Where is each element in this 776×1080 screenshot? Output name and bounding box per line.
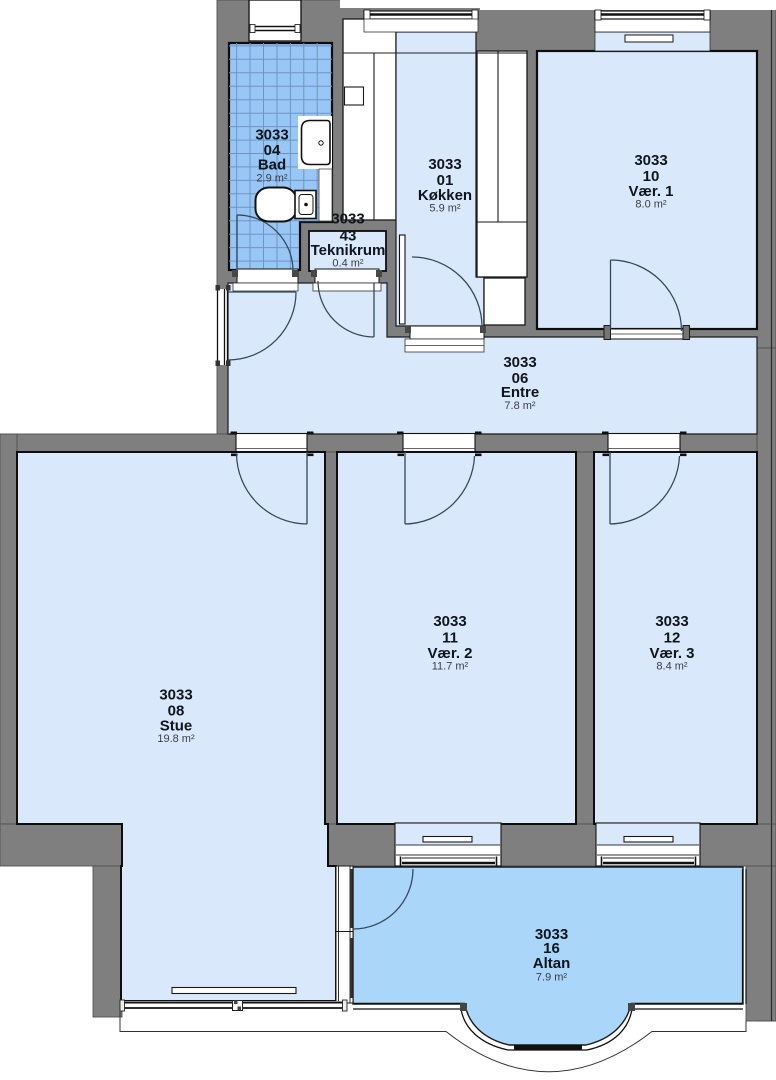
svg-text:Vær. 2: Vær. 2 bbox=[427, 645, 472, 662]
svg-text:11.7 m²: 11.7 m² bbox=[432, 661, 469, 673]
svg-text:3033: 3033 bbox=[159, 687, 192, 704]
svg-text:3033: 3033 bbox=[634, 152, 667, 169]
svg-text:3033: 3033 bbox=[255, 127, 288, 144]
svg-text:8.4 m²: 8.4 m² bbox=[656, 661, 688, 673]
svg-text:0.4 m²: 0.4 m² bbox=[332, 258, 364, 270]
svg-text:2.9 m²: 2.9 m² bbox=[256, 173, 288, 185]
svg-text:3033: 3033 bbox=[655, 613, 688, 630]
svg-text:3033: 3033 bbox=[428, 156, 461, 173]
svg-text:3033: 3033 bbox=[503, 354, 536, 371]
svg-text:12: 12 bbox=[664, 630, 681, 647]
svg-text:7.8 m²: 7.8 m² bbox=[504, 400, 536, 412]
svg-text:Stue: Stue bbox=[160, 718, 193, 735]
svg-text:Altan: Altan bbox=[533, 955, 571, 972]
svg-text:Teknikrum: Teknikrum bbox=[311, 242, 386, 259]
svg-text:Køkken: Køkken bbox=[418, 187, 472, 204]
svg-text:Bad: Bad bbox=[258, 157, 286, 174]
svg-text:3033: 3033 bbox=[433, 613, 466, 630]
svg-text:Vær. 3: Vær. 3 bbox=[649, 645, 694, 662]
svg-text:5.9 m²: 5.9 m² bbox=[429, 203, 461, 215]
svg-text:Entre: Entre bbox=[501, 384, 539, 401]
svg-text:3033: 3033 bbox=[331, 211, 364, 228]
svg-text:8.0 m²: 8.0 m² bbox=[635, 199, 667, 211]
svg-text:7.9 m²: 7.9 m² bbox=[536, 972, 568, 984]
svg-text:11: 11 bbox=[442, 630, 458, 647]
svg-text:Vær. 1: Vær. 1 bbox=[628, 183, 673, 200]
svg-text:19.8 m²: 19.8 m² bbox=[157, 733, 195, 745]
